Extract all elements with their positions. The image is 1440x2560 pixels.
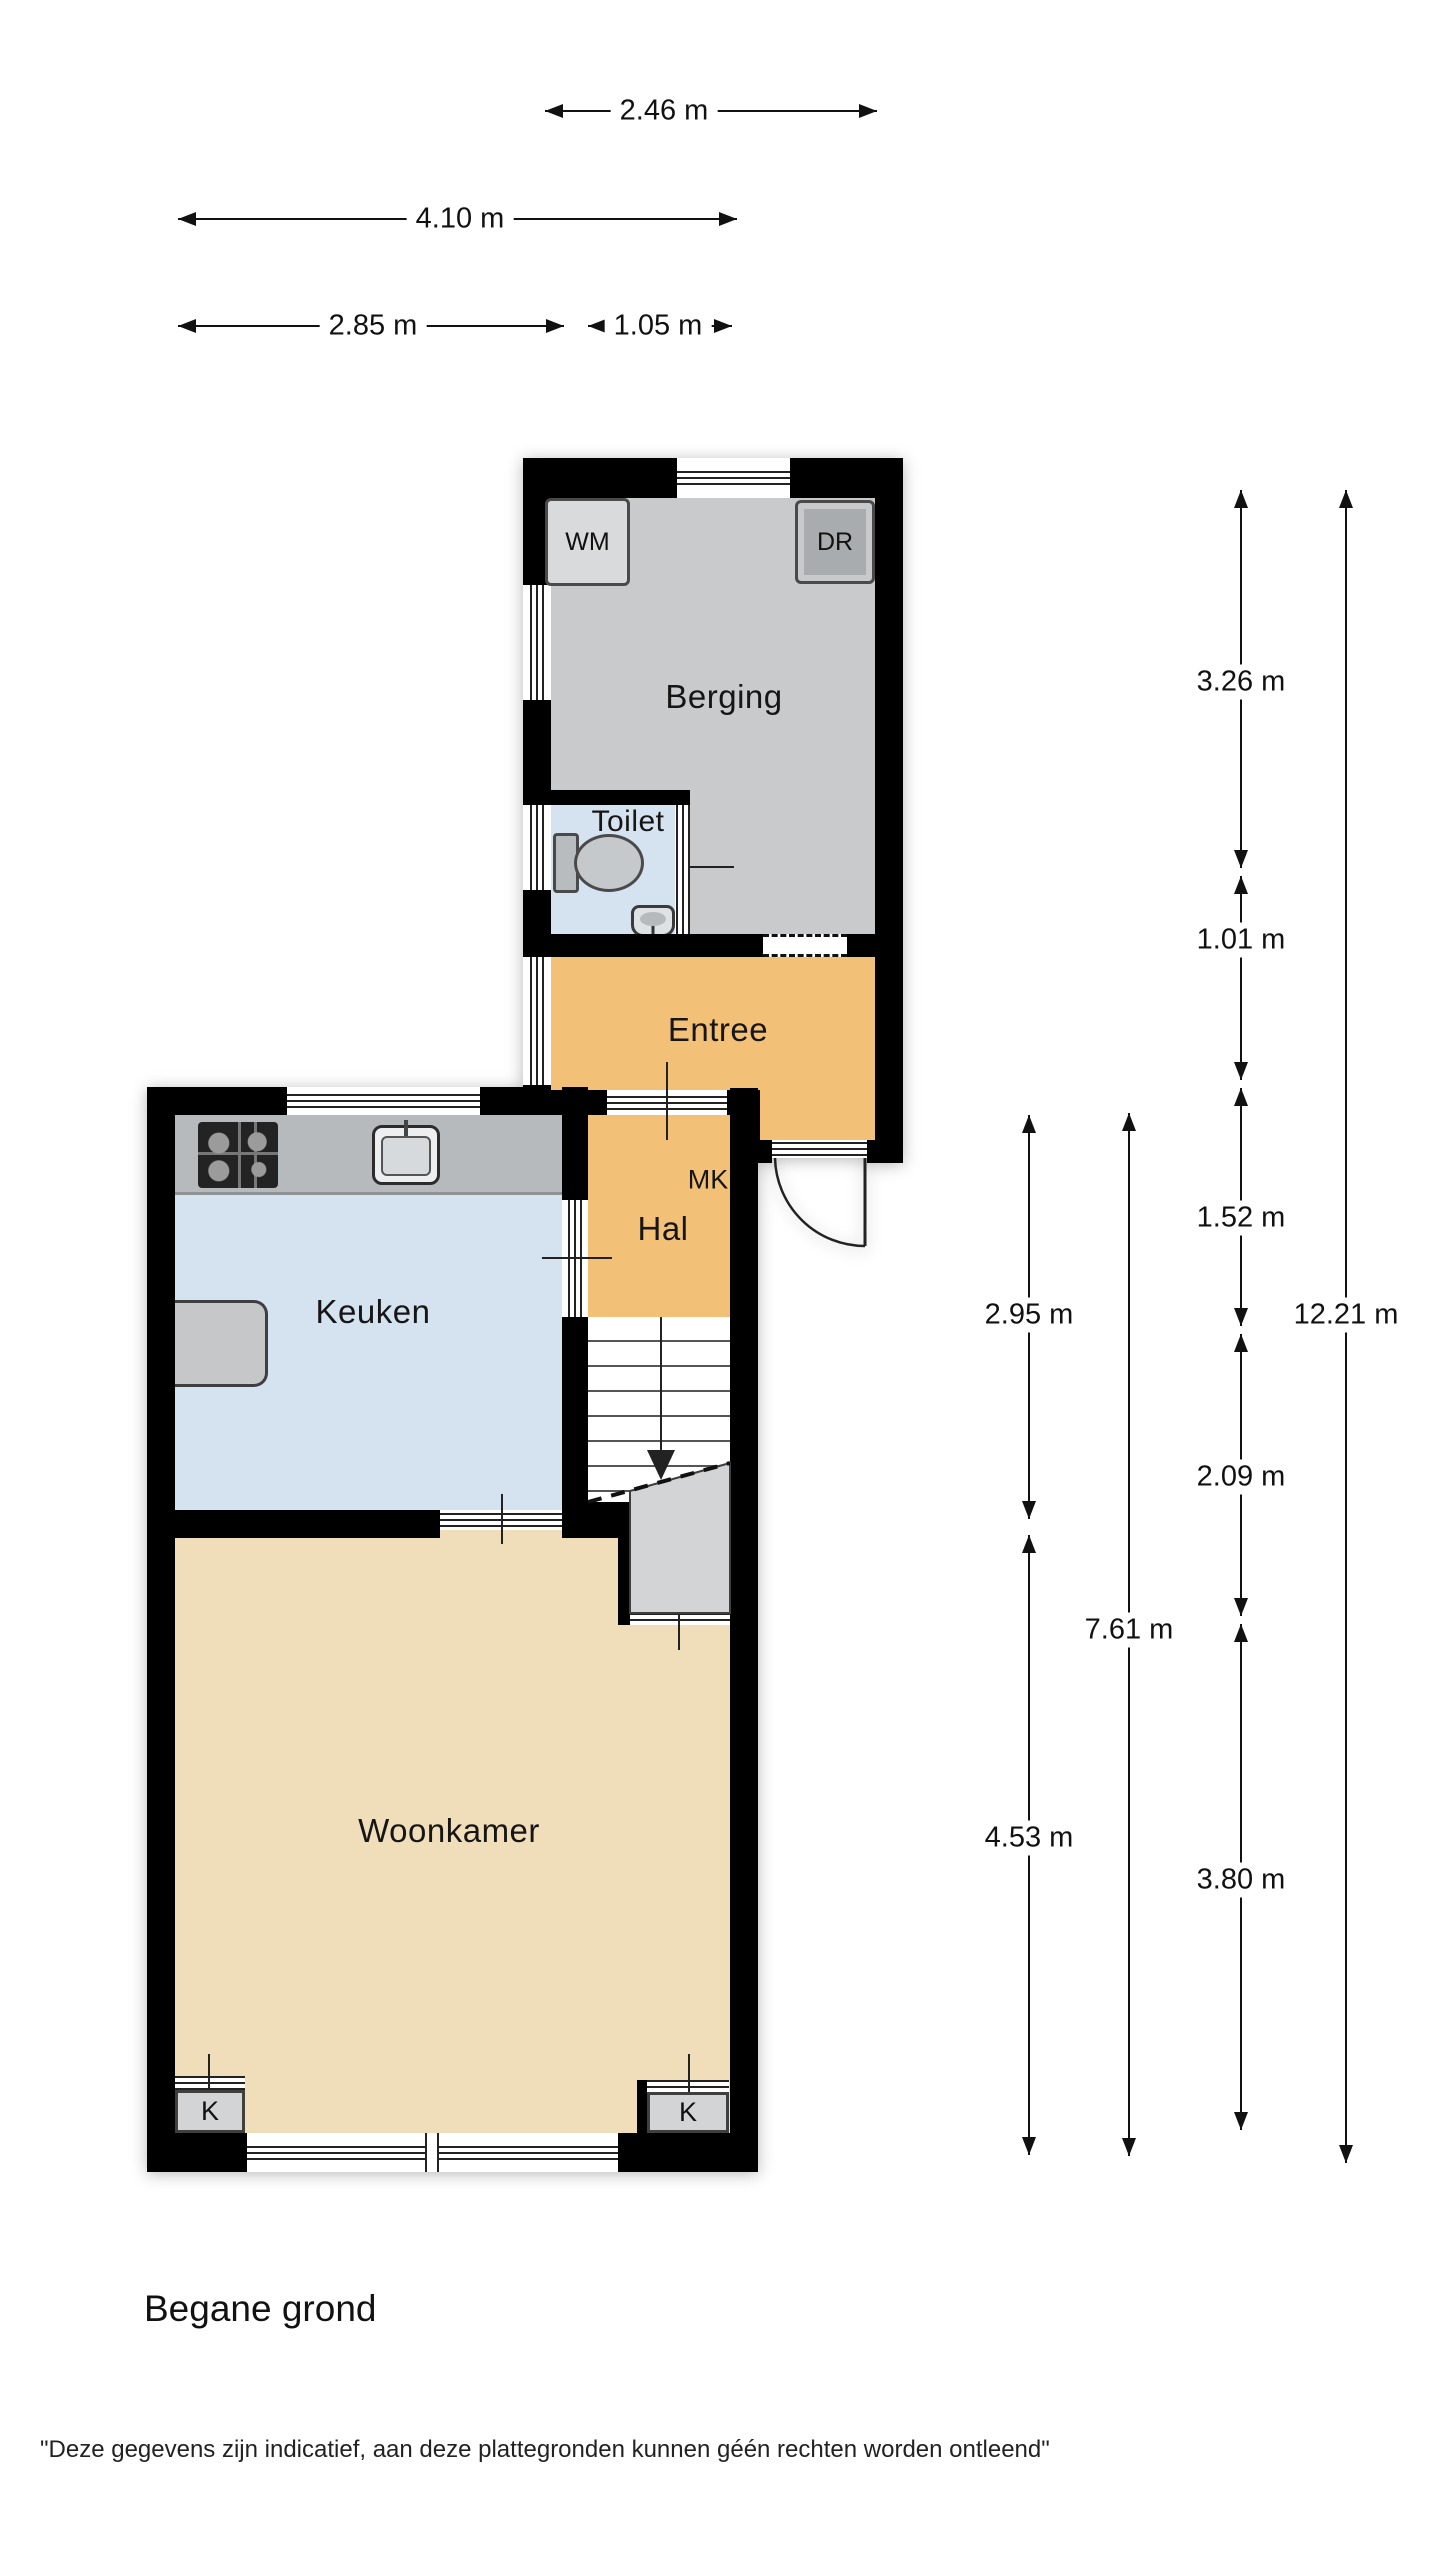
wall-left-d [523, 1085, 551, 1115]
woonkamer-label: Woonkamer [358, 1812, 540, 1850]
front-door-jamb [760, 1140, 772, 1163]
keuken-window [287, 1087, 480, 1115]
woonkamer-window [247, 2133, 618, 2172]
closet-left-hatch [175, 2076, 245, 2090]
berging-entree-opening [763, 934, 847, 957]
berging-window [677, 458, 790, 498]
keuken-hal-wall-top [562, 1087, 588, 1200]
keuken-top-wall-right [480, 1087, 523, 1115]
window-mullion [425, 2133, 439, 2172]
floorplan-drawing: WM DR [0, 0, 1440, 2560]
section-tick-entree-hal [666, 1062, 668, 1140]
stairs-down-arrow [647, 1450, 675, 1480]
threshold-lines [175, 2076, 245, 2090]
understairs-tick [678, 1598, 680, 1650]
front-door-threshold [772, 1140, 867, 1158]
closet-label: K [201, 2096, 219, 2127]
wall-right-upper [875, 458, 903, 1163]
closet-right: K [647, 2092, 729, 2133]
dryer-label: DR [817, 528, 853, 557]
toilet-label: Toilet [591, 805, 664, 839]
threshold-lines [630, 1613, 730, 1625]
dryer: DR [795, 500, 875, 584]
toilet-top-wall [523, 790, 690, 805]
wall-left-lower [147, 1087, 175, 2172]
stairs-left-wall [562, 1317, 588, 1510]
tap-icon [404, 1120, 408, 1136]
berging-label: Berging [665, 678, 782, 716]
closet-right-tick [688, 2054, 690, 2092]
window-glass [530, 585, 544, 700]
understairs-closet-wall [618, 1510, 630, 1625]
berging-side-window [523, 585, 551, 700]
washing-machine: WM [545, 498, 630, 586]
entree-top-wall [523, 934, 763, 957]
stairs-center-line [660, 1317, 662, 1457]
door-frame [772, 1142, 867, 1156]
entree-label: Entree [668, 1011, 768, 1049]
kitchen-sink [372, 1125, 440, 1185]
kitchen-table [175, 1300, 268, 1387]
section-tick-keuken-hal [542, 1257, 612, 1259]
closet-right-wall [637, 2080, 647, 2133]
wall-right-lower [730, 1088, 758, 2172]
window-glass [287, 1094, 480, 1108]
page-title: Begane grond [144, 2288, 376, 2330]
cooktop [198, 1122, 278, 1188]
sink-basin [381, 1136, 431, 1176]
understairs-closet-threshold [630, 1613, 730, 1625]
toilet-side-window [523, 805, 551, 890]
floorplan-page: 2.46 m4.10 m2.85 m1.05 m3.26 m1.01 m1.52… [0, 0, 1440, 2560]
entree-floor-door-strip [760, 1090, 875, 1140]
disclaimer-text: "Deze gegevens zijn indicatief, aan deze… [40, 2436, 1050, 2464]
door-frame [676, 805, 690, 934]
washing-machine-label: WM [565, 528, 609, 557]
hal-label: Hal [637, 1210, 688, 1248]
toilet-sink [631, 905, 675, 937]
section-tick-keuken-woonkamer [501, 1494, 503, 1544]
window-glass [530, 957, 544, 1085]
closet-left: K [175, 2090, 245, 2133]
keuken-bottom-wall [147, 1510, 440, 1538]
mk-label: MK [688, 1165, 729, 1196]
window-glass [530, 805, 544, 890]
toilet-bowl [574, 834, 644, 892]
entree-top-wall-right [847, 934, 903, 957]
front-door-swing-arc [775, 1158, 865, 1246]
toilet-door [675, 805, 690, 934]
closet-left-tick [208, 2054, 210, 2090]
closet-label: K [679, 2097, 697, 2128]
keuken-label: Keuken [316, 1293, 431, 1331]
front-door-corner-block [867, 1140, 903, 1163]
toilet-door-tick [690, 866, 734, 868]
entree-side-window [523, 957, 551, 1085]
window-glass [677, 471, 790, 485]
